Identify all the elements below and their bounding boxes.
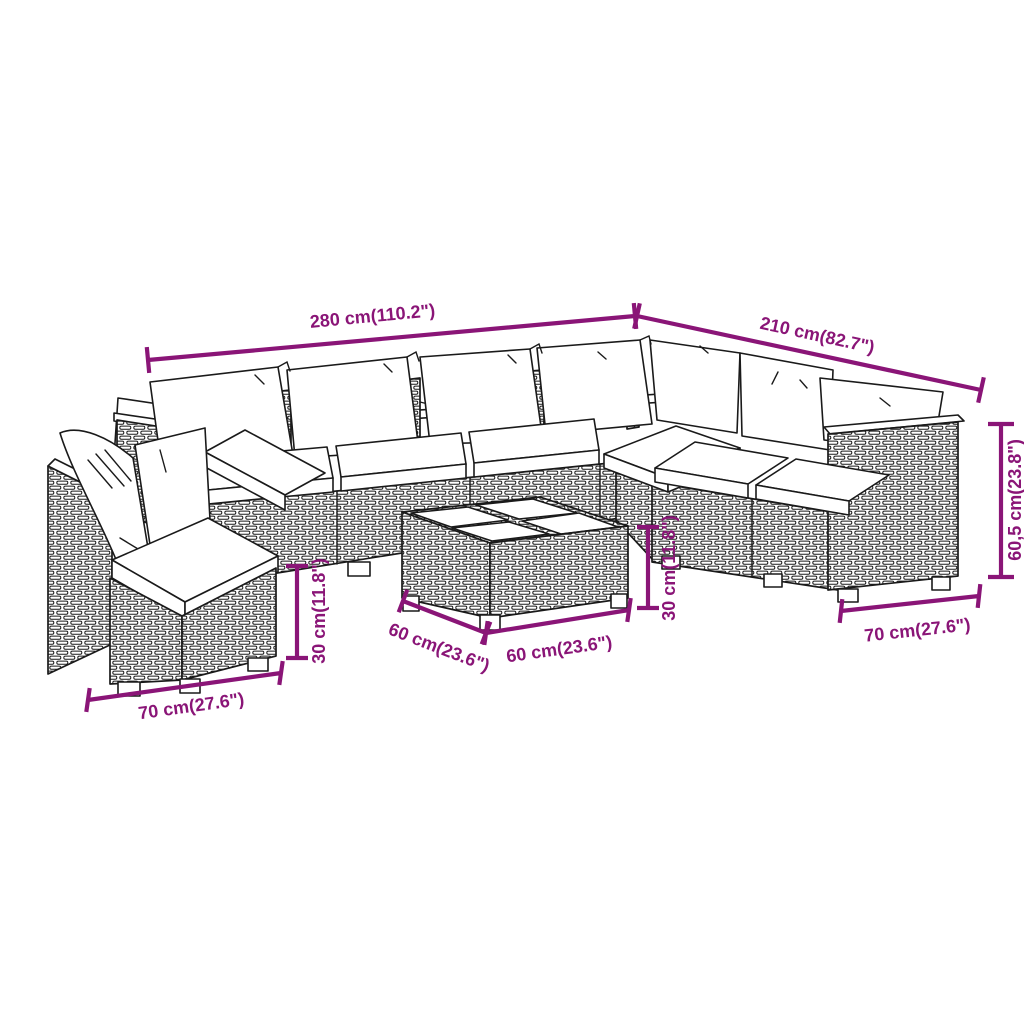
dimension-label: 210 cm(82.7") [758,313,876,358]
dimension-label: 70 cm(27.6") [137,689,245,723]
dimension-label: 30 cm(11.8") [659,515,679,621]
dimension-right-module-width: 70 cm(27.6") [840,584,981,646]
dimension-label: 30 cm(11.8") [309,558,329,664]
dimension-total-height: 60,5 cm(23.8") [988,424,1024,577]
table-side-right [490,526,628,618]
product-dimension-page: 280 cm(110.2") 210 cm(82.7") 60,5 cm(23.… [0,0,1024,1024]
dimension-seat-height: 30 cm(11.8") [286,558,329,664]
pillow [740,353,833,450]
foot [248,658,268,671]
dimension-label: 70 cm(27.6") [863,614,971,645]
dimension-label: 60,5 cm(23.8") [1005,439,1024,561]
coffee-table [402,497,628,630]
dimension-label: 60 cm(23.6") [505,632,613,666]
pillow [650,340,740,433]
dimension-label: 280 cm(110.2") [309,300,436,332]
foot [932,577,950,590]
furniture-dimension-diagram: 280 cm(110.2") 210 cm(82.7") 60,5 cm(23.… [0,0,1024,1024]
foot [611,594,627,608]
